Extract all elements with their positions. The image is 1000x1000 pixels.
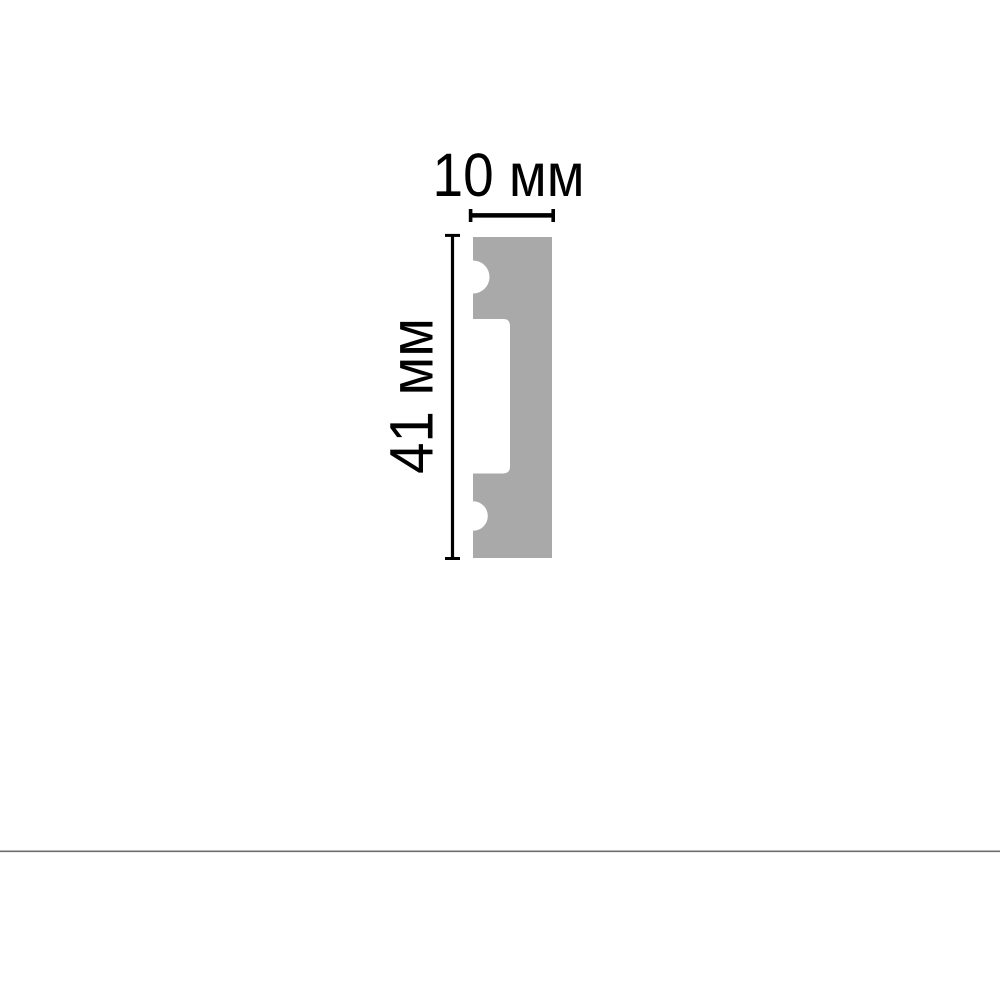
svg-text:10 мм: 10 мм — [433, 141, 585, 210]
svg-text:41 мм: 41 мм — [377, 318, 446, 474]
